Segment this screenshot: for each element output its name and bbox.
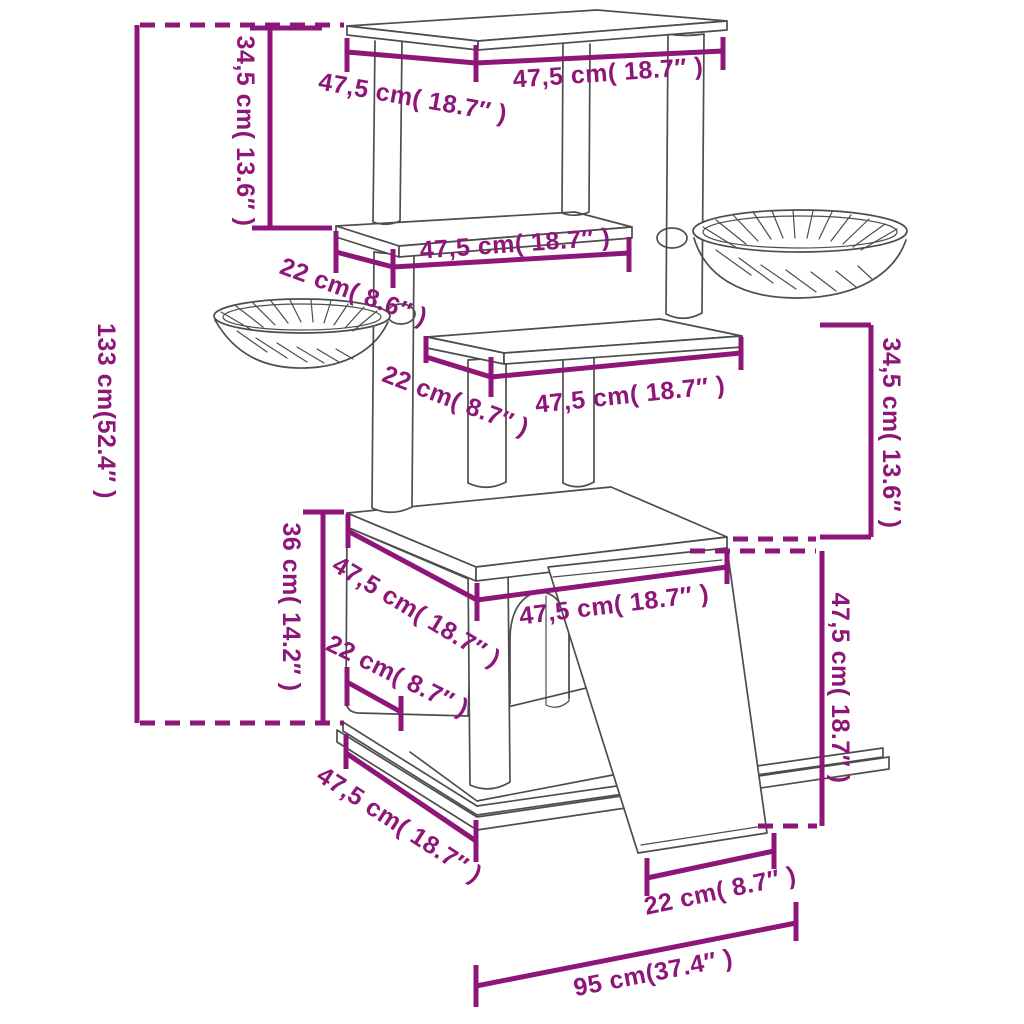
dimension-top-platform: 47,5 cm( 18.7″ ) 47,5 cm( 18.7″ ) [316,37,723,128]
dimension-house-height: 36 cm( 14.2″ ) [277,512,344,722]
dimension-total-height: 133 cm(52.4″ ) [92,25,344,723]
dimension-label: 22 cm( 8.7″ ) [642,861,799,921]
dimension-label: 133 cm(52.4″ ) [92,323,120,499]
cat-tree-line-drawing [214,10,907,853]
dimension-footprint-width: 95 cm(37.4″ ) [476,902,796,1007]
dimension-label: 34,5 cm( 13.6″ ) [877,338,905,529]
dimension-mid-section-height: 34,5 cm( 13.6″ ) [820,325,905,537]
dimension-label: 34,5 cm( 13.6″ ) [231,36,259,227]
dimension-label: 47,5 cm( 18.7″ ) [316,68,509,129]
dimension-label: 47,5 cm( 18.7″ ) [826,593,854,784]
cat-tree-dimension-diagram: 133 cm(52.4″ ) 34,5 cm( 13.6″ ) 47,5 cm(… [0,0,1024,1024]
dimension-upper-section-height: 34,5 cm( 13.6″ ) [231,28,332,228]
diagram-canvas: 133 cm(52.4″ ) 34,5 cm( 13.6″ ) 47,5 cm(… [0,0,1024,1024]
dimension-label: 36 cm( 14.2″ ) [277,522,305,691]
